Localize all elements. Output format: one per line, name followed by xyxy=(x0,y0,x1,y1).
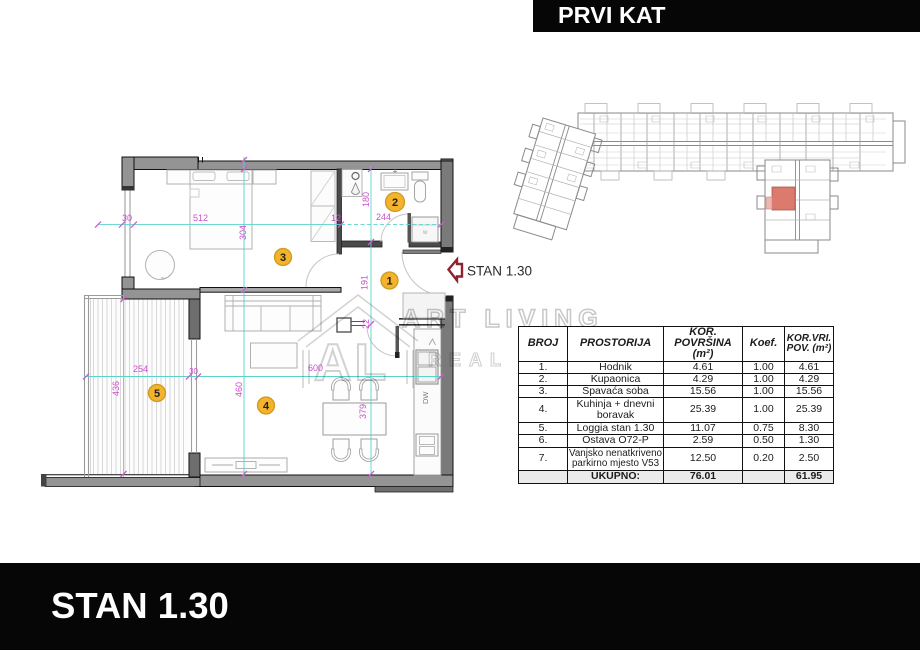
svg-text:STAN 1.30: STAN 1.30 xyxy=(467,264,532,279)
svg-text:12: 12 xyxy=(331,213,341,223)
svg-text:244: 244 xyxy=(376,212,391,222)
svg-text:460: 460 xyxy=(234,382,244,397)
svg-text:436: 436 xyxy=(111,381,121,396)
svg-text:30: 30 xyxy=(189,367,198,376)
svg-text:180: 180 xyxy=(361,192,371,207)
svg-text:254: 254 xyxy=(133,364,148,374)
svg-text:3: 3 xyxy=(280,252,286,264)
svg-text:5: 5 xyxy=(154,388,160,400)
svg-text:191: 191 xyxy=(360,275,370,290)
svg-text:22: 22 xyxy=(361,319,371,329)
svg-text:512: 512 xyxy=(193,213,208,223)
svg-text:1: 1 xyxy=(386,276,392,288)
svg-text:379: 379 xyxy=(358,404,368,419)
svg-text:30: 30 xyxy=(122,213,132,223)
svg-text:DW: DW xyxy=(421,391,430,404)
svg-text:304: 304 xyxy=(238,225,248,240)
svg-text:AL: AL xyxy=(314,334,389,392)
svg-text:4: 4 xyxy=(263,401,270,413)
svg-text:2: 2 xyxy=(392,197,398,209)
svg-text:w: w xyxy=(422,230,428,236)
